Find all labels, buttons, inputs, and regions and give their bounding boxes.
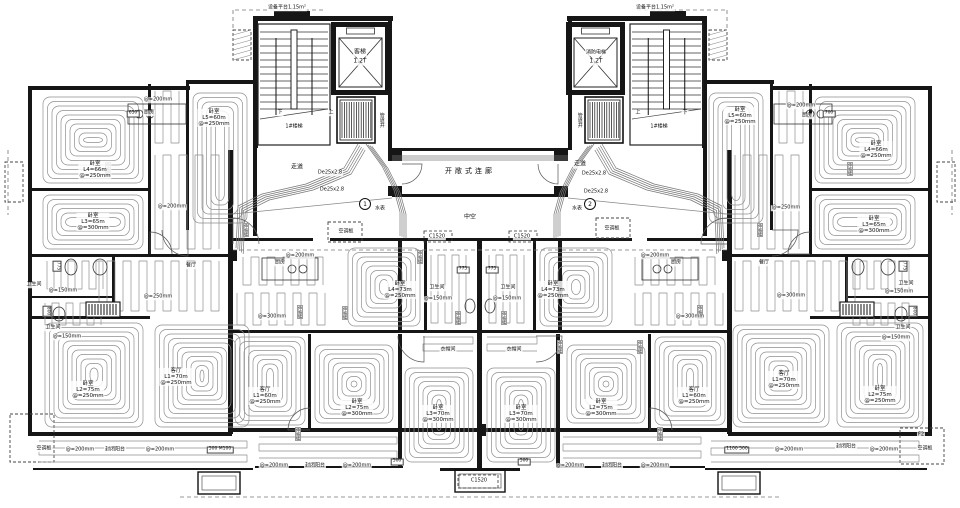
- room-label: 卧室L3=70m@=300mm: [421, 405, 454, 423]
- zone-name-label: 厨房: [670, 260, 682, 266]
- balcony-spacing-label: @=200mm: [774, 447, 804, 453]
- stair-up-label: 上: [327, 110, 334, 116]
- zone-name-label: 餐厅: [758, 260, 770, 266]
- bath-name-label: 卫生间: [894, 325, 911, 331]
- dimension-tag: 500 M100: [207, 447, 234, 454]
- room-spacing: @=250mm: [160, 380, 191, 386]
- dimension-tag: 650: [127, 111, 140, 118]
- room-spacing: @=300mm: [858, 228, 889, 234]
- dimension-tag: 775: [899, 261, 908, 272]
- expansion-joint-tag: 伸缩缝: [243, 223, 249, 237]
- expansion-joint-tag: 伸缩缝: [417, 250, 423, 264]
- balcony-name-label: 封闭阳台: [304, 463, 326, 469]
- room-spacing: @=250mm: [678, 399, 709, 405]
- room-spacing: @=250mm: [249, 399, 280, 405]
- expansion-joint-tag: 伸缩缝: [342, 306, 348, 320]
- dimension-tag: 500: [518, 459, 531, 466]
- bath-name-label: 卫生间: [428, 285, 445, 291]
- dimension-tag: 775: [486, 267, 499, 274]
- balcony-spacing-label: @=200mm: [145, 447, 175, 453]
- room-spacing: @=250mm: [864, 398, 895, 404]
- zone-spacing-label: @=250mm: [143, 294, 173, 300]
- platform-area-label-left: 设备平台1.15m²: [267, 5, 307, 11]
- ac-panel-label: 空调板: [916, 446, 933, 452]
- zone-name-label: 厨房: [143, 110, 155, 116]
- pipe-shaft-label-left: 管道井: [377, 113, 385, 128]
- room-spacing: @=300mm: [505, 417, 536, 423]
- zone-name-label: 厨房: [274, 260, 286, 266]
- room-label: 卧室L5=60m@=250mm: [723, 107, 756, 125]
- zone-spacing-label: @=250mm: [771, 205, 801, 211]
- room-label: 卧室L4=66m@=250mm: [78, 161, 111, 179]
- room-spacing: @=250mm: [79, 173, 110, 179]
- expansion-joint-tag: 伸缩缝: [847, 162, 853, 176]
- dimension-tag: 500: [391, 459, 404, 466]
- dimension-tag: 800: [43, 306, 52, 317]
- room-label: 客厅L1=60m@=250mm: [248, 387, 281, 405]
- bath-spacing-label: @=150mm: [52, 334, 82, 340]
- pipe-shaft-label-right: 管道井: [575, 113, 583, 128]
- room-spacing: @=250mm: [384, 293, 415, 299]
- balcony-spacing-label: @=200mm: [555, 463, 585, 469]
- balcony-spacing-label: @=200mm: [65, 447, 95, 453]
- dimension-tag: 700: [823, 111, 836, 118]
- pipe-spec-label: De25x2.8: [583, 189, 609, 195]
- elevator-name-left: 客梯: [353, 50, 367, 57]
- room-spacing: @=300mm: [585, 411, 616, 417]
- room-spacing: @=250mm: [768, 383, 799, 389]
- dimension-tag: 1100 500: [724, 447, 749, 454]
- balcony-spacing-label: @=200mm: [869, 447, 899, 453]
- elevator-name-right: 消防电梯: [585, 50, 607, 56]
- zone-spacing-label: @=200mm: [786, 103, 816, 109]
- room-spacing: @=300mm: [341, 411, 372, 417]
- closet-label: 衣帽间: [439, 347, 456, 353]
- expansion-joint-tag: 伸缩缝: [455, 311, 461, 325]
- room-label: 客厅L1=60m@=250mm: [677, 387, 710, 405]
- zone-spacing-label: @=200mm: [640, 253, 670, 259]
- dimension-tag: 775: [53, 261, 62, 272]
- closet-label: 衣帽间: [505, 347, 522, 353]
- elevator-capacity-right: 1.2T: [588, 59, 603, 66]
- expansion-joint-tag: 伸缩缝: [757, 223, 763, 237]
- stair-name-left: 1#楼梯: [284, 124, 303, 130]
- room-spacing: @=300mm: [77, 225, 108, 231]
- stair-name-right: 1#楼梯: [649, 124, 668, 130]
- stair-down-label: 下: [681, 110, 688, 116]
- expansion-joint-tag: 伸缩缝: [657, 427, 663, 441]
- room-label: 卧室L5=60m@=250mm: [197, 109, 230, 127]
- room-label: 卧室L2=75m@=250mm: [863, 386, 896, 404]
- zone-spacing-label: @=200mm: [285, 253, 315, 259]
- room-spacing: @=250mm: [724, 119, 755, 125]
- panel-code-tag: F2: [917, 432, 925, 438]
- room-label: 卧室L3=70m@=300mm: [504, 405, 537, 423]
- ac-panel-label: 空调板: [35, 446, 52, 452]
- water-meter-number-left: 1: [359, 198, 371, 210]
- stair-down-label: 下: [276, 110, 283, 116]
- water-meter-label-left: 水表: [374, 206, 386, 212]
- void-label: 中空: [463, 215, 477, 222]
- zone-spacing-label: @=300mm: [776, 293, 806, 299]
- zone-name-label: 厨房: [801, 113, 813, 119]
- window-tag: C1520: [428, 234, 446, 240]
- expansion-joint-tag: 伸缩缝: [501, 311, 507, 325]
- balcony-name-label: 封闭阳台: [835, 444, 857, 450]
- room-label: 客厅L1=70m@=250mm: [767, 371, 800, 389]
- pipe-spec-label: De25x2.8: [317, 170, 343, 176]
- zone-spacing-label: @=300mm: [257, 314, 287, 320]
- bath-spacing-label: @=150mm: [884, 289, 914, 295]
- ac-panel-label: 空调板: [603, 226, 620, 232]
- zone-name-label: 餐厅: [185, 263, 197, 269]
- window-tag: C1520: [513, 234, 531, 240]
- floor-heating-plan-canvas: 设备平台1.15m²设备平台1.15m²1#楼梯下上1#楼梯上下客梯1.2T消防…: [0, 0, 960, 508]
- balcony-name-label: 封闭阳台: [104, 447, 126, 453]
- room-spacing: @=250mm: [198, 121, 229, 127]
- room-label: 卧室L2=75m@=300mm: [340, 399, 373, 417]
- zone-spacing-label: @=300mm: [675, 314, 705, 320]
- pipe-spec-label: De25x2.8: [581, 171, 607, 177]
- room-spacing: @=250mm: [537, 293, 568, 299]
- bath-name-label: 卫生间: [44, 325, 61, 331]
- expansion-joint-tag: 伸缩缝: [637, 340, 643, 354]
- bath-name-label: 卫生间: [897, 281, 914, 287]
- room-label: 卧室L2=75m@=300mm: [584, 399, 617, 417]
- bath-spacing-label: @=150mm: [492, 296, 522, 302]
- platform-area-label-right: 设备平台1.15m²: [635, 5, 675, 11]
- pipe-spec-label: De25x2.8: [319, 187, 345, 193]
- dimension-tag: 800: [909, 306, 918, 317]
- room-spacing: @=300mm: [422, 417, 453, 423]
- corridor-label-right: 走道: [573, 162, 587, 169]
- bath-name-label: 卫生间: [499, 285, 516, 291]
- elevator-capacity-left: 1.2T: [352, 59, 367, 66]
- bath-name-label: 卫生间: [25, 282, 42, 288]
- corridor-label-left: 走道: [290, 165, 304, 172]
- balcony-name-label: 封闭阳台: [601, 463, 623, 469]
- bath-spacing-label: @=150mm: [48, 288, 78, 294]
- room-label: 卧室L4=73m@=250mm: [383, 281, 416, 299]
- window-tag: C1520: [470, 478, 488, 484]
- room-label: 卧室L2=75m@=250mm: [71, 381, 104, 399]
- stair-up-label: 上: [634, 110, 641, 116]
- balcony-spacing-label: @=200mm: [259, 463, 289, 469]
- expansion-joint-tag: 伸缩缝: [297, 305, 303, 319]
- room-label: 卧室L4=73m@=250mm: [536, 281, 569, 299]
- bath-spacing-label: @=150mm: [881, 335, 911, 341]
- zone-spacing-label: @=200mm: [157, 204, 187, 210]
- open-corridor-label: 开敞式连廊: [444, 168, 496, 176]
- room-label: 卧室L3=65m@=300mm: [76, 213, 109, 231]
- balcony-spacing-label: @=200mm: [640, 463, 670, 469]
- zone-spacing-label: @=200mm: [143, 97, 173, 103]
- balcony-spacing-label: @=200mm: [342, 463, 372, 469]
- room-label: 卧室L3=65m@=300mm: [857, 216, 890, 234]
- water-meter-label-right: 水表: [571, 206, 583, 212]
- ac-panel-label: 空调板: [337, 229, 354, 235]
- room-label: 客厅L1=70m@=250mm: [159, 368, 192, 386]
- room-spacing: @=250mm: [860, 153, 891, 159]
- water-meter-number-right: 2: [584, 198, 596, 210]
- expansion-joint-tag: 伸缩缝: [295, 427, 301, 441]
- bath-spacing-label: @=150mm: [423, 296, 453, 302]
- room-spacing: @=250mm: [72, 393, 103, 399]
- expansion-joint-tag: 伸缩缝: [557, 340, 563, 354]
- plan-linework: [0, 0, 960, 508]
- room-label: 卧室L4=66m@=250mm: [859, 141, 892, 159]
- dimension-tag: 775: [457, 267, 470, 274]
